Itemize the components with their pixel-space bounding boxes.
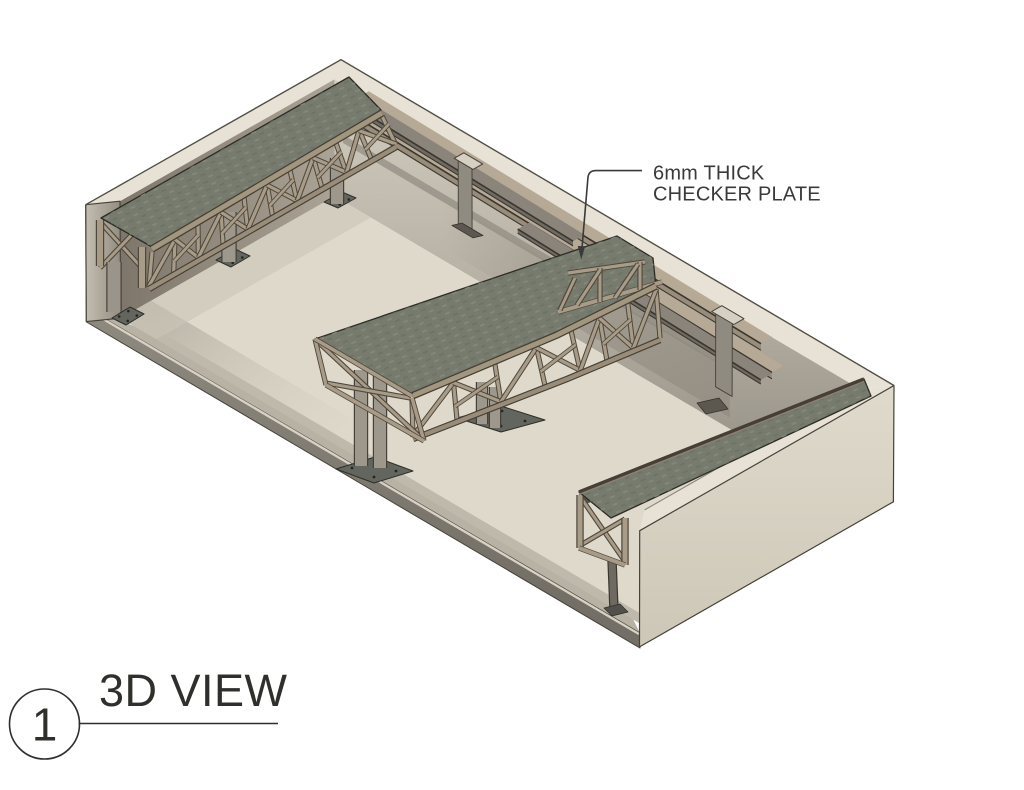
svg-text:1: 1 <box>32 699 58 751</box>
svg-text:3D VIEW: 3D VIEW <box>99 665 288 716</box>
svg-text:6mm THICK: 6mm THICK <box>653 163 765 185</box>
svg-text:CHECKER PLATE: CHECKER PLATE <box>653 184 821 206</box>
